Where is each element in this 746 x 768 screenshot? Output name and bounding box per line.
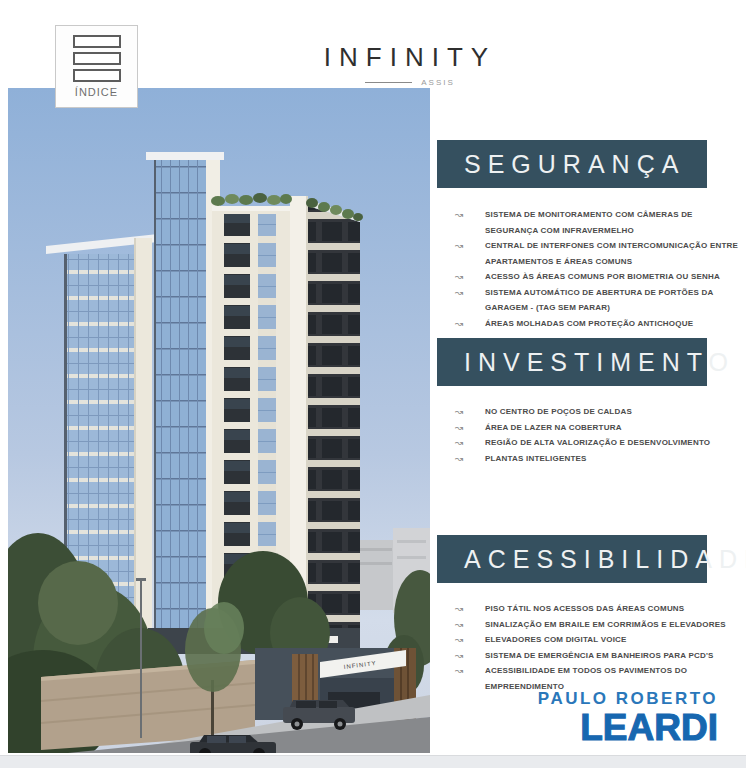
index-stack-icon (56, 26, 137, 82)
section-header-acessibilidade: ACESSIBILIDADE (437, 535, 707, 583)
project-logo: INFINITY ASSIS (300, 42, 520, 87)
wave-arrow-icon: ↝ (455, 269, 485, 285)
wave-arrow-icon: ↝ (455, 435, 485, 451)
building-render: INFINITY (8, 88, 430, 753)
wave-arrow-icon: ↝ (455, 404, 485, 420)
feature-item: ↝ ACESSO ÀS ÁREAS COMUNS POR BIOMETRIA O… (437, 269, 741, 285)
wave-arrow-icon: ↝ (455, 601, 485, 617)
feature-item: ↝ ÁREA DE LAZER NA COBERTURA (437, 420, 741, 436)
feature-item: ↝ PISO TÁTIL NOS ACESSOS DAS ÁREAS COMUN… (437, 601, 741, 617)
feature-list-acessibilidade: ↝ PISO TÁTIL NOS ACESSOS DAS ÁREAS COMUN… (437, 601, 741, 694)
bottom-strip (0, 755, 746, 768)
logo-divider-line (365, 82, 412, 83)
agency-logo-top: PAULO ROBERTO (538, 690, 718, 707)
wave-arrow-icon: ↝ (455, 632, 485, 648)
building-illustration: INFINITY (8, 88, 430, 753)
wave-arrow-icon: ↝ (455, 663, 485, 679)
feature-list-seguranca: ↝ SISTEMA DE MONITORAMENTO COM CÂMERAS D… (437, 207, 741, 331)
agency-logo: PAULO ROBERTO LEARDI (538, 690, 718, 746)
indice-button-label: ÍNDICE (56, 86, 137, 98)
feature-item: ↝ NO CENTRO DE POÇOS DE CALDAS (437, 404, 741, 420)
project-location: ASSIS (421, 78, 455, 87)
wave-arrow-icon: ↝ (455, 617, 485, 633)
feature-item: ↝ ELEVADORES COM DIGITAL VOICE (437, 632, 741, 648)
agency-logo-name: LEARDI (538, 709, 718, 746)
feature-item: ↝ SINALIZAÇÃO EM BRAILE EM CORRIMÃOS E E… (437, 617, 741, 633)
wave-arrow-icon: ↝ (455, 648, 485, 664)
wave-arrow-icon: ↝ (455, 420, 485, 436)
wave-arrow-icon: ↝ (455, 238, 485, 254)
wave-arrow-icon: ↝ (455, 451, 485, 467)
project-name: INFINITY (300, 42, 520, 73)
wave-arrow-icon: ↝ (455, 207, 485, 223)
feature-item: ↝ SISTEMA AUTOMÁTICO DE ABERTURA DE PORT… (437, 285, 741, 316)
feature-item: ↝ SISTEMA DE EMERGÊNCIA EM BANHEIROS PAR… (437, 648, 741, 664)
section-header-seguranca: SEGURANÇA (437, 140, 707, 188)
feature-item: ↝ ÁREAS MOLHADAS COM PROTEÇÃO ANTICHOQUE (437, 316, 741, 332)
feature-item: ↝ PLANTAS INTELIGENTES (437, 451, 741, 467)
feature-list-investimento: ↝ NO CENTRO DE POÇOS DE CALDAS ↝ ÁREA DE… (437, 404, 741, 466)
wave-arrow-icon: ↝ (455, 316, 485, 332)
brochure-page: INFINITY (0, 0, 746, 768)
feature-item: ↝ SISTEMA DE MONITORAMENTO COM CÂMERAS D… (437, 207, 741, 238)
feature-item: ↝ REGIÃO DE ALTA VALORIZAÇÃO E DESENVOLV… (437, 435, 741, 451)
section-header-investimento: INVESTIMENTO (437, 338, 707, 386)
wave-arrow-icon: ↝ (455, 285, 485, 301)
feature-item: ↝ CENTRAL DE INTERFONES COM INTERCOMUNIC… (437, 238, 741, 269)
indice-button[interactable]: ÍNDICE (55, 25, 138, 108)
